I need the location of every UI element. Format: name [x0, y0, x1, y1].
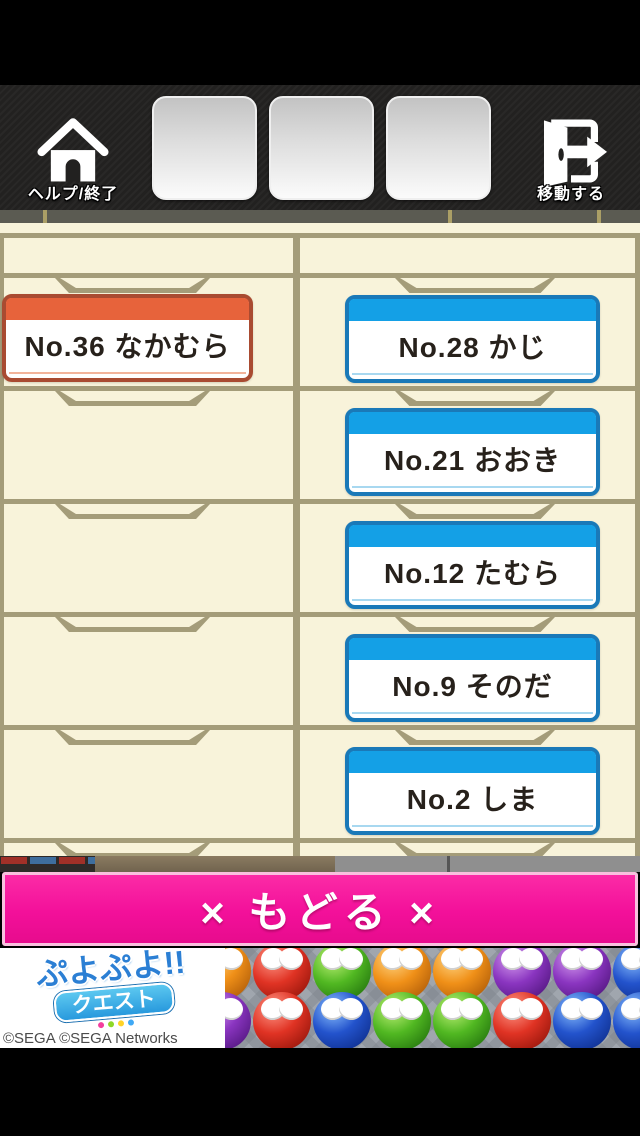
puyo-purple — [225, 992, 251, 1048]
peek-chip — [59, 857, 85, 864]
tag-rule — [352, 486, 593, 488]
drawer-handle — [395, 278, 555, 293]
locker-tag-no28[interactable]: No.28 かじ — [345, 295, 600, 383]
puyo-red — [253, 992, 311, 1048]
ad-copyright: ©SEGA ©SEGA Networks — [3, 1030, 178, 1047]
locker-tag-no36[interactable]: No.36 なかむら — [2, 294, 253, 382]
tag-label: No.28 かじ — [349, 321, 596, 371]
drawer-handle — [55, 617, 210, 632]
cabinet-frame-tick — [448, 210, 452, 223]
tag-label: No.12 たむら — [349, 547, 596, 597]
cabinet-frame-tick — [43, 210, 47, 223]
slot-button-2[interactable] — [269, 96, 374, 200]
help-exit-button[interactable]: ヘルプ/終了 — [14, 93, 132, 203]
locker-tag-no21[interactable]: No.21 おおき — [345, 408, 600, 496]
drawer-handle — [395, 617, 555, 632]
shoe-locker-cabinet: No.36 なかむら No.28 かじ No.21 おおき No.12 たむら … — [0, 223, 640, 856]
tag-label: No.21 おおき — [349, 434, 596, 484]
back-button[interactable]: × もどる × — [2, 872, 638, 946]
drawer-handle — [395, 391, 555, 406]
tag-header — [349, 525, 596, 547]
cabinet-line — [635, 233, 640, 856]
puyo-green — [433, 992, 491, 1048]
tag-header — [349, 299, 596, 321]
tag-header — [349, 751, 596, 773]
ad-banner[interactable]: ぷよぷよ!! クエスト ©SEGA ©SEGA Networks — [0, 948, 640, 1048]
exit-door-icon — [531, 115, 611, 187]
tag-label: No.2 しま — [349, 773, 596, 823]
tag-rule — [9, 372, 246, 374]
tag-rule — [352, 373, 593, 375]
tag-header — [6, 298, 249, 320]
puyo-blue — [553, 992, 611, 1048]
move-label: 移動する — [537, 187, 605, 203]
peek-chip — [30, 857, 56, 864]
tag-rule — [352, 825, 593, 827]
drawer-handle — [55, 391, 210, 406]
help-exit-label: ヘルプ/終了 — [28, 187, 118, 203]
tag-rule — [352, 599, 593, 601]
puyo-grid — [225, 948, 640, 1048]
locker-tag-no9[interactable]: No.9 そのだ — [345, 634, 600, 722]
cabinet-divider — [293, 233, 300, 856]
drawer-handle — [55, 730, 210, 745]
move-button[interactable]: 移動する — [512, 93, 630, 203]
peek-gray — [335, 856, 640, 872]
home-icon — [34, 115, 112, 187]
tag-label: No.36 なかむら — [6, 320, 249, 370]
app-screen: ヘルプ/終了 移動する — [0, 0, 640, 1136]
peek-tiles — [0, 856, 95, 872]
peek-brown — [95, 856, 335, 872]
peek-chip — [88, 857, 95, 864]
back-button-label: × もどる × — [200, 879, 440, 940]
drawer-handle — [55, 278, 210, 293]
drawer-handle — [395, 504, 555, 519]
toolbar: ヘルプ/終了 移動する — [0, 85, 640, 210]
puyo-quest-logo: ぷよぷよ!! クエスト — [7, 943, 218, 1035]
tag-rule — [352, 712, 593, 714]
locker-tag-no2[interactable]: No.2 しま — [345, 747, 600, 835]
cabinet-line — [0, 233, 640, 238]
cabinet-top-shadow — [0, 210, 640, 223]
tag-header — [349, 638, 596, 660]
puyo-blue — [613, 992, 640, 1048]
locker-tag-no12[interactable]: No.12 たむら — [345, 521, 600, 609]
puyo-red — [493, 992, 551, 1048]
slot-button-3[interactable] — [386, 96, 491, 200]
slot-button-1[interactable] — [152, 96, 257, 200]
tag-header — [349, 412, 596, 434]
puyo-blue — [313, 992, 371, 1048]
background-peek-strip — [0, 856, 640, 872]
drawer-handle — [55, 504, 210, 519]
puyo-green — [373, 992, 431, 1048]
peek-chip — [1, 857, 27, 864]
tag-label: No.9 そのだ — [349, 660, 596, 710]
cabinet-frame-tick — [597, 210, 601, 223]
drawer-handle — [395, 730, 555, 745]
